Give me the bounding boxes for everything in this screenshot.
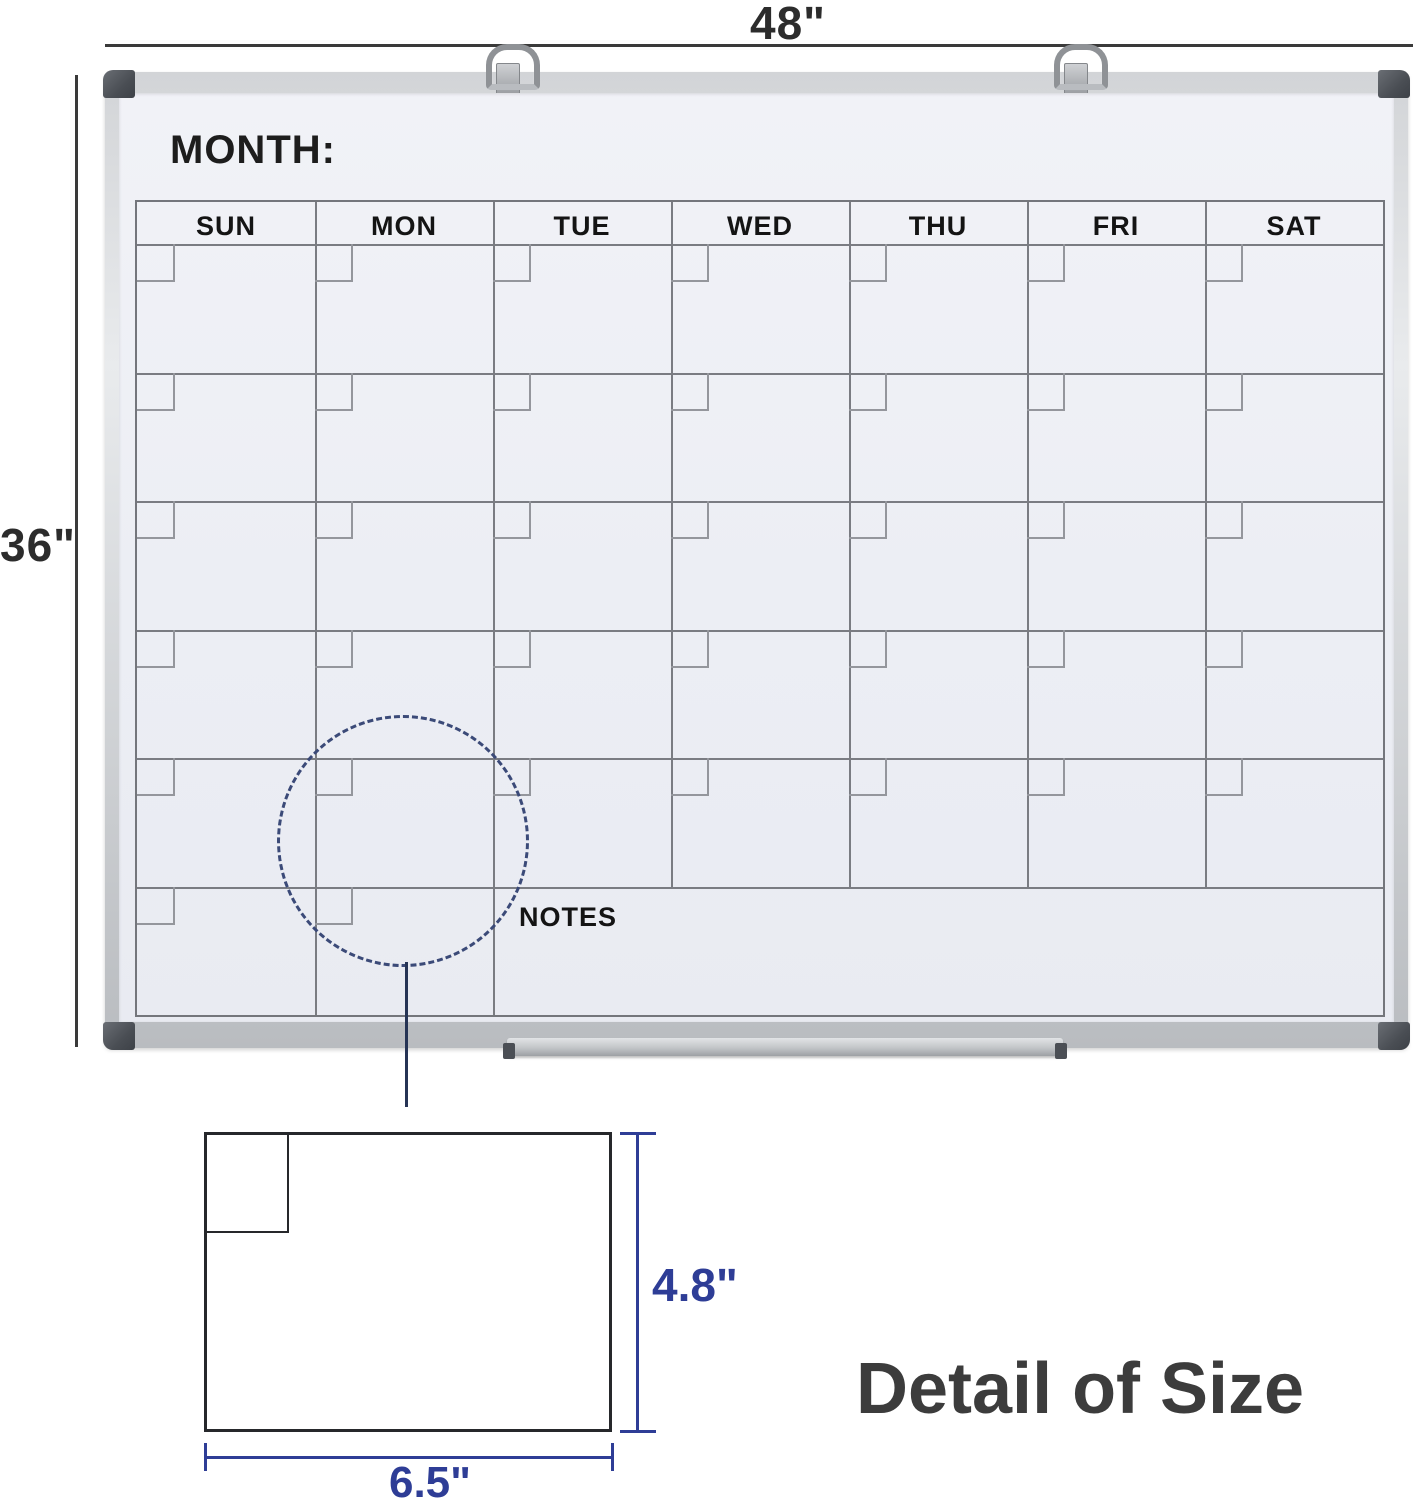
corner-cap-bottom-left	[103, 1022, 135, 1050]
date-box	[1205, 758, 1243, 796]
date-box	[137, 887, 175, 925]
cell-height-tick-top	[620, 1132, 656, 1135]
date-box	[315, 244, 353, 282]
date-box	[137, 244, 175, 282]
date-box	[1205, 501, 1243, 539]
marker-tray	[507, 1038, 1063, 1056]
notes-label: NOTES	[519, 902, 617, 933]
callout-line	[405, 962, 408, 1107]
day-header-tue: TUE	[493, 209, 671, 243]
date-box	[671, 501, 709, 539]
date-box	[1205, 630, 1243, 668]
date-box	[137, 501, 175, 539]
product-size-diagram: 48" 36" MONTH: NOTES SUNMONTUEWEDTHUFRIS…	[0, 0, 1418, 1500]
date-box	[849, 630, 887, 668]
date-box	[315, 373, 353, 411]
day-header-thu: THU	[849, 209, 1027, 243]
day-header-fri: FRI	[1027, 209, 1205, 243]
date-box	[849, 244, 887, 282]
cell-width-tick-right	[611, 1443, 614, 1471]
date-box	[1027, 244, 1065, 282]
date-box	[671, 244, 709, 282]
detail-cell-box	[204, 1132, 612, 1432]
date-box	[1027, 630, 1065, 668]
date-box	[1205, 244, 1243, 282]
date-box	[493, 244, 531, 282]
date-box	[1027, 501, 1065, 539]
date-box	[671, 630, 709, 668]
month-heading: MONTH:	[170, 128, 336, 173]
cell-height-tick-bottom	[620, 1430, 656, 1433]
date-box	[315, 630, 353, 668]
tray-end-cap-right	[1055, 1043, 1067, 1059]
date-box	[671, 373, 709, 411]
cell-width-tick-left	[204, 1443, 207, 1471]
hanging-ring-left-icon	[486, 44, 540, 90]
date-box	[493, 373, 531, 411]
board-height-label: 36"	[0, 518, 75, 572]
date-box	[493, 630, 531, 668]
day-header-mon: MON	[315, 209, 493, 243]
date-box	[137, 758, 175, 796]
board-width-label: 48"	[718, 0, 858, 50]
date-box	[493, 501, 531, 539]
tray-end-cap-left	[503, 1043, 515, 1059]
day-header-wed: WED	[671, 209, 849, 243]
day-header-sun: SUN	[137, 209, 315, 243]
detail-date-square	[207, 1135, 289, 1233]
corner-cap-top-right	[1378, 70, 1410, 98]
date-box	[849, 373, 887, 411]
date-box	[1027, 758, 1065, 796]
hanging-ring-right-icon	[1054, 44, 1108, 90]
highlight-circle	[277, 715, 529, 967]
date-box	[1205, 373, 1243, 411]
date-box	[315, 501, 353, 539]
day-header-sat: SAT	[1205, 209, 1383, 243]
corner-cap-top-left	[103, 70, 135, 98]
cell-height-label: 4.8"	[652, 1258, 738, 1312]
date-box	[1027, 373, 1065, 411]
date-box	[671, 758, 709, 796]
cell-height-dimension-line	[636, 1133, 639, 1432]
date-box	[849, 501, 887, 539]
date-box	[137, 373, 175, 411]
detail-title: Detail of Size	[856, 1348, 1304, 1430]
cell-width-label: 6.5"	[340, 1458, 520, 1500]
date-box	[137, 630, 175, 668]
corner-cap-bottom-right	[1378, 1022, 1410, 1050]
date-box	[849, 758, 887, 796]
